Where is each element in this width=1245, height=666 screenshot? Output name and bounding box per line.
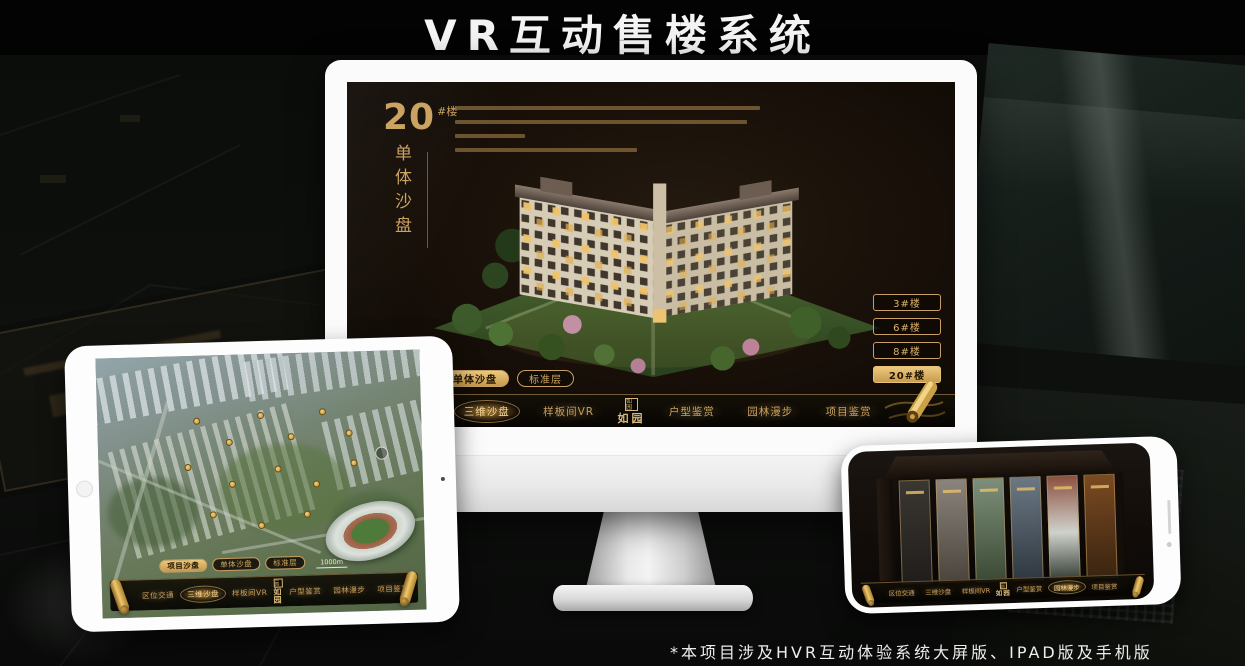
phone-speaker-icon [1167, 500, 1171, 534]
footnote-text: *本项目涉及HVR互动体验系统大屏版、IPAD版及手机版 [670, 639, 1153, 663]
tablet-nav-3d-sandbox[interactable]: 三维沙盘 [180, 585, 226, 603]
gold-scroll-icon[interactable] [881, 378, 947, 426]
tablet-tab-standard-floor[interactable]: 标准层 [265, 556, 305, 570]
tablet-device: 项目沙盘 单体沙盘 标准层 1000m 区位交通 三维沙盘 样板间VR 如园 如… [64, 336, 460, 633]
phone-nav-3d-sandbox[interactable]: 三维沙盘 [920, 585, 956, 598]
brand-name: 如园 [617, 413, 645, 424]
nav-item-floorplan[interactable]: 户型鉴赏 [660, 401, 724, 422]
floor-button-6[interactable]: 6#楼 [873, 318, 941, 335]
scene-card[interactable] [1046, 475, 1080, 580]
phone-nav-floorplan[interactable]: 户型鉴赏 [1011, 582, 1047, 595]
tab-standard-floor[interactable]: 标准层 [517, 370, 574, 387]
scene-card-gallery [899, 474, 1118, 585]
seal-icon: 如园 [1000, 582, 1007, 589]
tablet-tab-project-sandbox[interactable]: 项目沙盘 [159, 559, 207, 573]
building-number: 20 [383, 97, 435, 138]
map-scale-label: 1000m [316, 558, 347, 569]
floor-button-3[interactable]: 3#楼 [873, 294, 941, 311]
poster-canvas: VR互动售楼系统 *本项目涉及HVR互动体验系统大屏版、IPAD版及手机版 20… [0, 0, 1245, 666]
phone-camera-icon [1167, 542, 1172, 547]
scroll-handle-right-icon[interactable] [1131, 575, 1144, 596]
phone-device: 区位交通 三维沙盘 样板间VR 如园 如园 户型鉴赏 园林漫步 项目鉴赏 [840, 436, 1181, 614]
scroll-handle-left-icon[interactable] [861, 584, 875, 606]
scene-card[interactable] [899, 480, 933, 585]
monitor-stand-neck [586, 510, 716, 588]
tablet-screen: 项目沙盘 单体沙盘 标准层 1000m 区位交通 三维沙盘 样板间VR 如园 如… [95, 350, 426, 619]
nav-item-project-view[interactable]: 项目鉴赏 [817, 401, 881, 422]
tablet-tab-single-sandbox[interactable]: 单体沙盘 [212, 557, 260, 571]
scene-card[interactable] [936, 478, 970, 583]
brand-name: 如园 [996, 590, 1011, 597]
river-shape [962, 43, 1245, 367]
tablet-nav-floorplan[interactable]: 户型鉴赏 [283, 583, 327, 599]
tablet-nav-location[interactable]: 区位交通 [136, 587, 180, 603]
seal-icon: 如园 [273, 578, 282, 587]
interior-pillar [876, 479, 895, 581]
nav-item-showroom-vr[interactable]: 样板间VR [534, 401, 603, 422]
seal-icon: 如园 [625, 398, 638, 411]
tablet-camera-icon [441, 477, 445, 481]
home-button[interactable] [76, 480, 93, 497]
building-3d-model[interactable] [395, 144, 915, 379]
floor-button-8[interactable]: 8#楼 [873, 342, 941, 359]
brand-logo: 如园 如园 [617, 398, 645, 424]
nav-item-3d-sandbox[interactable]: 三维沙盘 [454, 400, 520, 423]
background-aerial-photo [962, 43, 1245, 367]
nav-item-garden-walk[interactable]: 园林漫步 [738, 401, 802, 422]
phone-brand-logo: 如园 如园 [996, 582, 1011, 597]
scene-card[interactable] [973, 477, 1007, 582]
tablet-nav-showroom-vr[interactable]: 样板间VR [226, 584, 274, 600]
scene-card[interactable] [1083, 474, 1117, 579]
phone-nav-project-view[interactable]: 项目鉴赏 [1086, 580, 1122, 593]
phone-nav-showroom-vr[interactable]: 样板间VR [957, 584, 996, 597]
floor-button-group: 3#楼 6#楼 8#楼 20#楼 [873, 294, 941, 383]
tablet-nav-garden-walk[interactable]: 园林漫步 [327, 581, 371, 597]
phone-nav-garden-walk[interactable]: 园林漫步 [1048, 580, 1086, 595]
scroll-handle-left-icon[interactable] [109, 578, 131, 614]
monitor-stand-base [553, 585, 753, 611]
scene-card[interactable] [1009, 476, 1043, 581]
brand-name: 如园 [273, 588, 283, 604]
phone-screen: 区位交通 三维沙盘 样板间VR 如园 如园 户型鉴赏 园林漫步 项目鉴赏 [848, 443, 1155, 608]
page-title: VR互动售楼系统 [0, 2, 1245, 63]
phone-nav-location[interactable]: 区位交通 [883, 586, 919, 599]
tablet-brand-logo: 如园 如园 [273, 578, 284, 604]
